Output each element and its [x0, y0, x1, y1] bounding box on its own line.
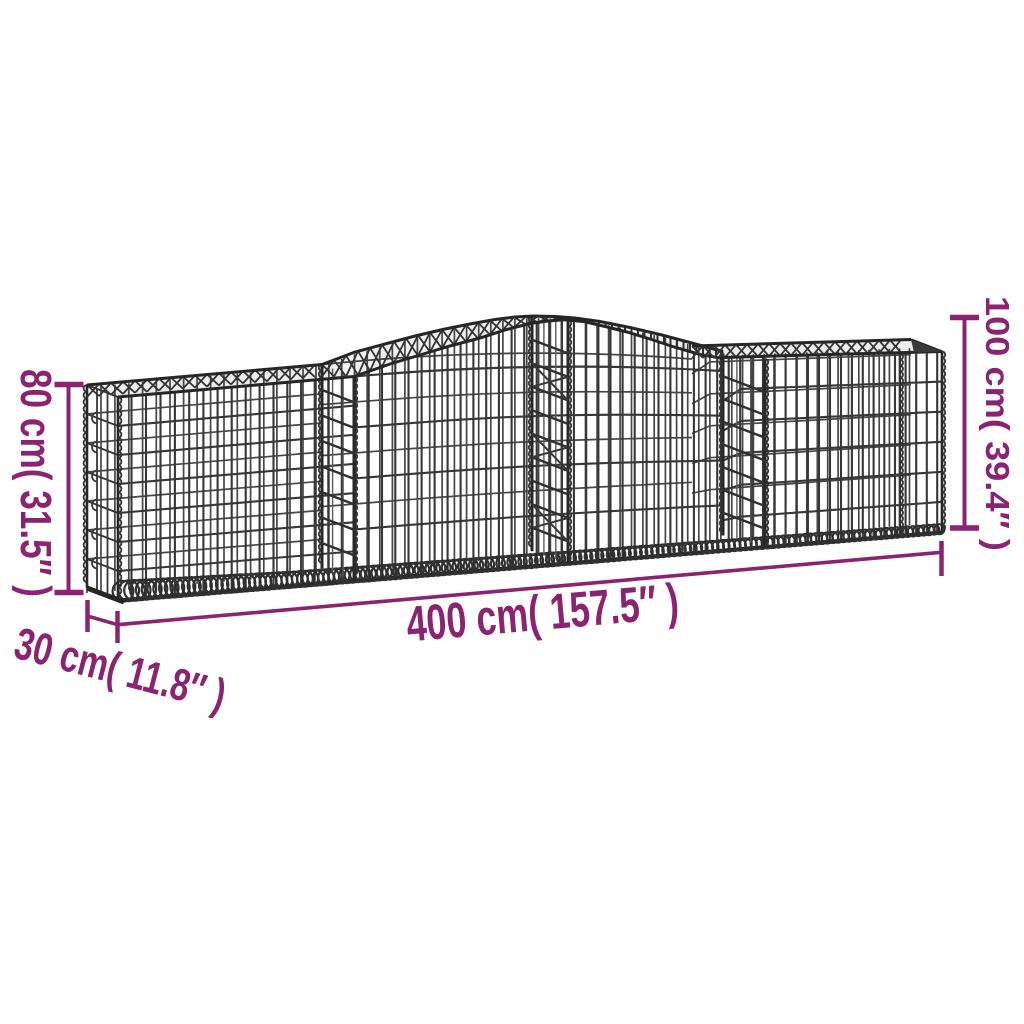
- svg-text:100 cm( 39.4″ ): 100 cm( 39.4″ ): [979, 296, 1016, 551]
- svg-text:30 cm( 11.8″ ): 30 cm( 11.8″ ): [9, 617, 231, 720]
- svg-text:400 cm( 157.5″ ): 400 cm( 157.5″ ): [404, 573, 681, 653]
- svg-text:80 cm( 31.5″ ): 80 cm( 31.5″ ): [11, 369, 60, 597]
